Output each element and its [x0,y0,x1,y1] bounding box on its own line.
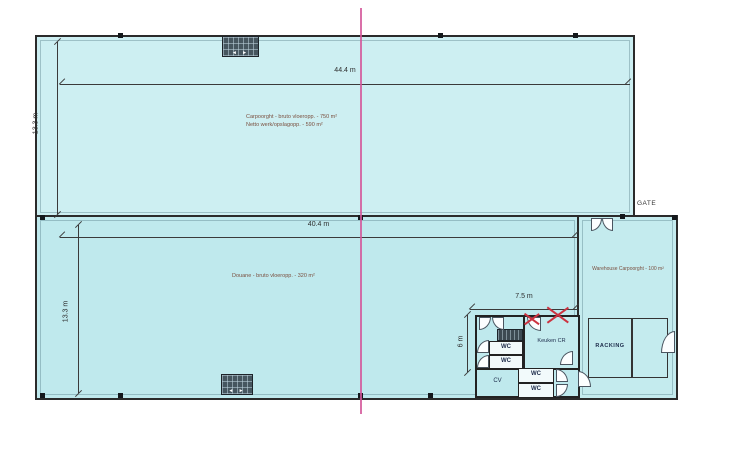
gate-label: GATE [637,200,656,207]
wc-label-d: WC [518,386,554,392]
dimension-upper-height: 13.3 m [33,104,40,144]
warehouse-label: Warehouse Carpoorght - 100 m² [582,265,674,273]
wc-label-b: WC [489,358,523,364]
dimension-upper-width: 44.4 m [60,67,630,74]
wall-post [40,393,45,398]
upper-hall-label-line2: Netto werk/opslagopp. - 590 m² [246,121,337,129]
dimension-line-lower-height [78,225,79,393]
upper-hall-label: Carpoorght - bruto vloeropp. - 750 m² Ne… [246,113,337,129]
wc-label-a: WC [489,344,523,350]
wall-post [573,33,578,38]
wall-post [40,215,45,220]
cross-out-mark-small [524,311,540,327]
wc-label-c: WC [518,371,554,377]
upper-hall-label-line1: Carpoorght - bruto vloeropp. - 750 m² [246,113,337,121]
cv-label: CV [475,378,520,384]
dimension-lower-height: 13.3 m [63,292,70,332]
wall-post [620,214,625,219]
kitchen-label: Keuken CR [523,338,580,344]
wall-post [672,215,677,220]
sectional-gate-top: ◄ ► [222,36,259,57]
racking-label: RACKING [588,343,632,349]
dimension-line-upper-width [60,84,630,85]
dimension-annex-width: 7.5 m [470,293,578,300]
wall-post [118,33,123,38]
lower-hall-label: Douane - bruto vloeropp. - 320 m² [232,272,315,280]
gate-arrows-icon: ◄ ► [223,50,258,56]
sink-counter [497,329,523,341]
wall-post [428,393,433,398]
cross-out-mark-large [546,305,569,324]
dimension-line-annex-height [467,315,468,372]
gate-arrows-icon: ◄ ► [222,388,252,394]
dimension-lower-width: 40.4 m [60,221,577,228]
dimension-annex-height: 6 m [458,322,465,362]
scan-fold-line [360,8,362,414]
dimension-line-lower-width [60,237,577,238]
wall-post [118,393,123,398]
wall-post [438,33,443,38]
dimension-line-upper-height [57,42,58,214]
sectional-gate-bottom: ◄ ► [221,374,253,395]
floor-plan-canvas: GATE 44.4 m 13.3 m 40.4 m 13.3 m 7.5 m 6… [0,0,736,461]
